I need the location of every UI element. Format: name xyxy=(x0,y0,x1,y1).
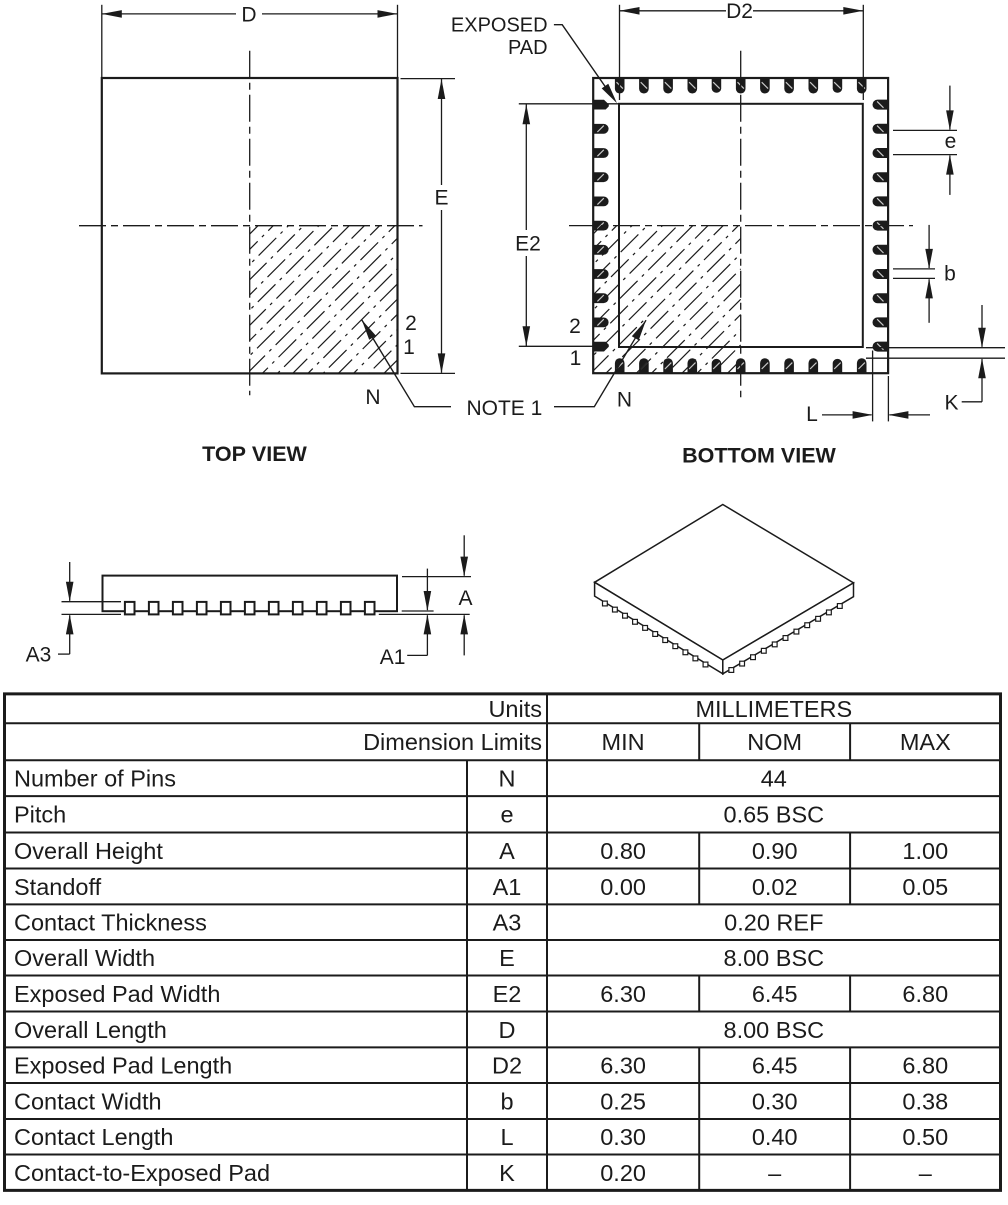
svg-text:Contact-to-Exposed Pad: Contact-to-Exposed Pad xyxy=(14,1160,270,1186)
svg-text:E: E xyxy=(434,187,448,210)
svg-text:Units: Units xyxy=(488,696,542,722)
svg-text:D2: D2 xyxy=(492,1053,522,1079)
svg-text:b: b xyxy=(944,262,956,285)
svg-text:NOTE 1: NOTE 1 xyxy=(466,397,542,420)
svg-text:N: N xyxy=(499,766,516,792)
svg-text:0.30: 0.30 xyxy=(600,1124,646,1150)
svg-text:E: E xyxy=(499,945,515,971)
svg-text:D: D xyxy=(241,3,256,26)
svg-text:A: A xyxy=(458,587,472,610)
svg-text:0.40: 0.40 xyxy=(752,1124,798,1150)
svg-text:E2: E2 xyxy=(515,233,541,256)
svg-text:Number of Pins: Number of Pins xyxy=(14,766,176,792)
svg-text:Pitch: Pitch xyxy=(14,802,66,828)
svg-text:BOTTOM VIEW: BOTTOM VIEW xyxy=(682,443,836,467)
svg-text:6.30: 6.30 xyxy=(600,1053,646,1079)
svg-text:2: 2 xyxy=(569,315,581,338)
svg-text:–: – xyxy=(768,1160,782,1186)
svg-text:44: 44 xyxy=(761,766,787,792)
svg-text:8.00 BSC: 8.00 BSC xyxy=(724,945,825,971)
svg-text:6.80: 6.80 xyxy=(902,981,948,1007)
svg-text:8.00 BSC: 8.00 BSC xyxy=(724,1017,825,1043)
svg-text:N: N xyxy=(617,388,632,411)
svg-text:0.38: 0.38 xyxy=(902,1088,948,1114)
svg-text:NOM: NOM xyxy=(747,729,802,755)
svg-text:Overall Width: Overall Width xyxy=(14,945,155,971)
svg-text:PAD: PAD xyxy=(508,37,548,59)
svg-text:1: 1 xyxy=(403,336,415,359)
svg-text:Exposed Pad Length: Exposed Pad Length xyxy=(14,1053,232,1079)
svg-text:D: D xyxy=(499,1017,516,1043)
svg-text:0.65 BSC: 0.65 BSC xyxy=(724,802,825,828)
svg-text:e: e xyxy=(945,130,957,153)
svg-text:0.20 REF: 0.20 REF xyxy=(724,910,823,936)
svg-text:Contact Thickness: Contact Thickness xyxy=(14,910,207,936)
svg-text:Overall Length: Overall Length xyxy=(14,1017,167,1043)
svg-text:1: 1 xyxy=(570,347,582,370)
svg-text:0.00: 0.00 xyxy=(600,874,646,900)
svg-text:0.05: 0.05 xyxy=(902,874,948,900)
svg-text:Overall Height: Overall Height xyxy=(14,838,163,864)
svg-text:A3: A3 xyxy=(26,644,52,667)
svg-text:0.80: 0.80 xyxy=(600,838,646,864)
svg-text:D2: D2 xyxy=(726,0,753,23)
svg-text:2: 2 xyxy=(405,312,417,335)
svg-text:K: K xyxy=(499,1160,515,1186)
svg-text:Contact Length: Contact Length xyxy=(14,1124,173,1150)
svg-text:MIN: MIN xyxy=(602,729,645,755)
svg-text:e: e xyxy=(500,802,513,828)
svg-text:b: b xyxy=(500,1088,513,1114)
svg-text:0.25: 0.25 xyxy=(600,1088,646,1114)
svg-text:A1: A1 xyxy=(380,646,406,669)
svg-text:EXPOSED: EXPOSED xyxy=(451,15,548,37)
svg-text:A: A xyxy=(499,838,515,864)
svg-text:0.90: 0.90 xyxy=(752,838,798,864)
svg-text:Exposed Pad Width: Exposed Pad Width xyxy=(14,981,220,1007)
svg-text:A1: A1 xyxy=(493,874,522,900)
svg-text:6.45: 6.45 xyxy=(752,1053,798,1079)
svg-text:A3: A3 xyxy=(493,910,522,936)
svg-text:–: – xyxy=(919,1160,933,1186)
svg-text:MILLIMETERS: MILLIMETERS xyxy=(695,696,852,722)
svg-text:TOP VIEW: TOP VIEW xyxy=(202,442,307,466)
svg-text:0.20: 0.20 xyxy=(600,1160,646,1186)
svg-text:6.30: 6.30 xyxy=(600,981,646,1007)
svg-text:MAX: MAX xyxy=(900,729,951,755)
svg-text:6.80: 6.80 xyxy=(902,1053,948,1079)
svg-text:N: N xyxy=(365,386,380,409)
svg-text:0.50: 0.50 xyxy=(902,1124,948,1150)
svg-text:0.30: 0.30 xyxy=(752,1088,798,1114)
svg-text:E2: E2 xyxy=(493,981,522,1007)
svg-text:1.00: 1.00 xyxy=(902,838,948,864)
svg-text:K: K xyxy=(944,392,958,415)
svg-text:Standoff: Standoff xyxy=(14,874,102,900)
svg-text:Dimension Limits: Dimension Limits xyxy=(363,729,542,755)
svg-text:L: L xyxy=(500,1124,513,1150)
svg-text:L: L xyxy=(806,403,818,426)
svg-text:Contact Width: Contact Width xyxy=(14,1088,162,1114)
svg-text:6.45: 6.45 xyxy=(752,981,798,1007)
svg-text:0.02: 0.02 xyxy=(752,874,798,900)
